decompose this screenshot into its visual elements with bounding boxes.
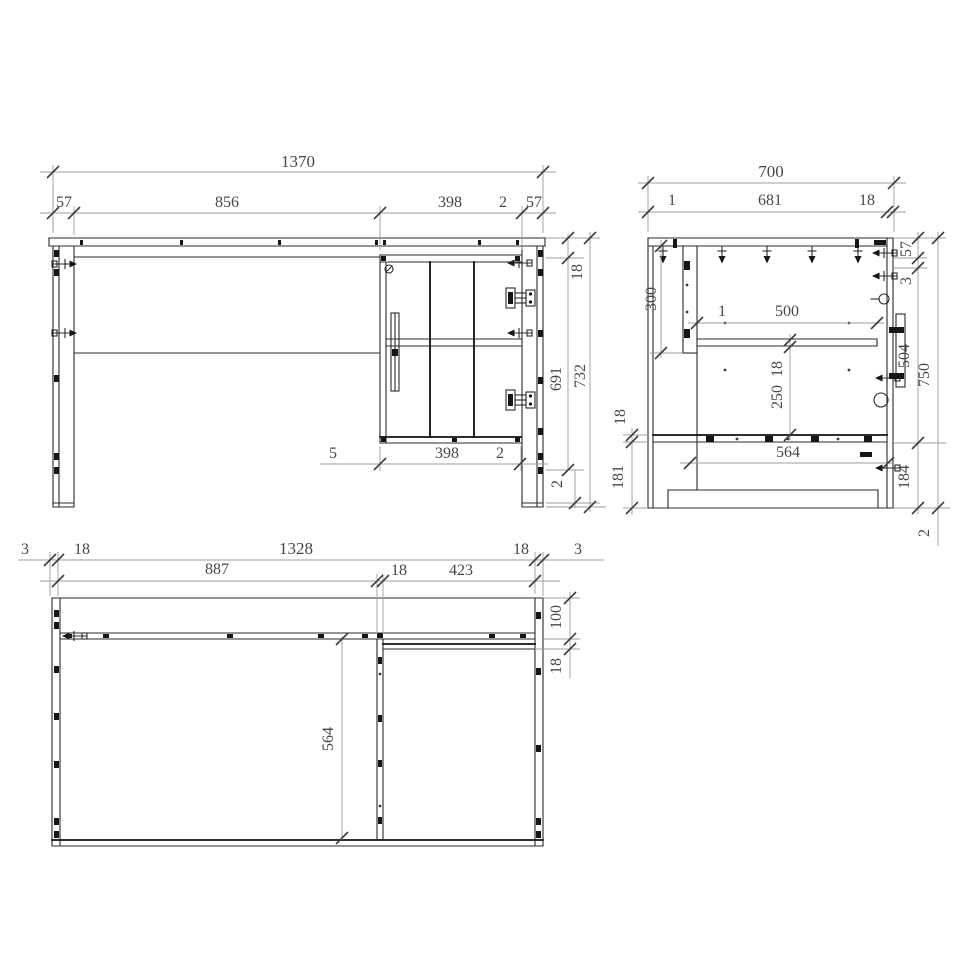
dim-front-base-gap: 2: [496, 445, 504, 462]
dim-side-back-gap: 3: [898, 277, 915, 285]
dim-side-base-height: 184: [896, 465, 913, 489]
dim-side-foot-thickness: 18: [612, 409, 629, 425]
dim-front-top-thickness: 18: [569, 264, 586, 280]
dim-side-bottom-edge: 2: [916, 529, 933, 537]
dim-front-seg-gap: 2: [499, 194, 507, 211]
dim-plan-right-section: 423: [449, 562, 473, 579]
dim-side-bottom-depth: 564: [776, 444, 800, 461]
dim-side-slide-length: 504: [896, 344, 913, 368]
desk-technical-drawing: 1370 57 856 398 2 57 5 398 2 18 691 732 …: [0, 0, 970, 971]
technical-drawing-page: 1370 57 856 398 2 57 5 398 2 18 691 732 …: [0, 0, 970, 971]
dim-front-bottom-gap: 2: [549, 480, 566, 488]
dim-side-back-thickness: 18: [859, 192, 875, 209]
dim-front-seg-left: 57: [56, 194, 72, 211]
dim-side-foot-height: 181: [610, 465, 627, 489]
dim-plan-back-offset: 100: [548, 605, 565, 629]
dim-plan-panel-left: 18: [74, 541, 90, 558]
dim-side-inner-depth: 681: [758, 192, 782, 209]
dim-side-shelf-depth: 500: [775, 303, 799, 320]
dim-plan-panel-right: 18: [513, 541, 529, 558]
dim-front-base-left: 5: [329, 445, 337, 462]
dim-front-body-height: 732: [572, 364, 589, 388]
dim-front-base-width: 398: [435, 445, 459, 462]
dim-plan-shelf-edge: 18: [548, 658, 565, 674]
dim-side-front-edge: 1: [668, 192, 676, 209]
front-view: 1370 57 856 398 2 57 5 398 2 18 691 732 …: [40, 152, 606, 513]
dim-plan-inner-width: 1328: [279, 539, 313, 558]
dim-side-total-height: 750: [916, 363, 933, 387]
dim-side-shelf-thickness: 18: [769, 361, 786, 377]
dim-side-back-top: 57: [898, 241, 915, 257]
dim-front-seg-opening: 856: [215, 194, 239, 211]
plan-view: 3 18 1328 18 3 887 18 423 100 18 564: [18, 539, 604, 846]
dim-plan-opening: 887: [205, 561, 229, 578]
dim-plan-inner-depth: 564: [320, 727, 337, 751]
dim-plan-edge-left: 3: [21, 541, 29, 558]
dim-side-shelf-front: 1: [718, 303, 726, 320]
dim-side-shelf-clear: 250: [769, 385, 786, 409]
dim-front-total-width: 1370: [281, 152, 315, 171]
side-view: 700 1 681 18 300 1 500 18 250 564 18 181…: [610, 162, 950, 546]
dim-plan-partition: 18: [391, 562, 407, 579]
dim-side-total-depth: 700: [758, 162, 784, 181]
dim-front-seg-cabinet: 398: [438, 194, 462, 211]
dim-plan-edge-right: 3: [574, 541, 582, 558]
dim-front-inner-height: 691: [548, 367, 565, 391]
dim-front-seg-right: 57: [526, 194, 542, 211]
dim-side-leg-height: 300: [643, 287, 660, 311]
